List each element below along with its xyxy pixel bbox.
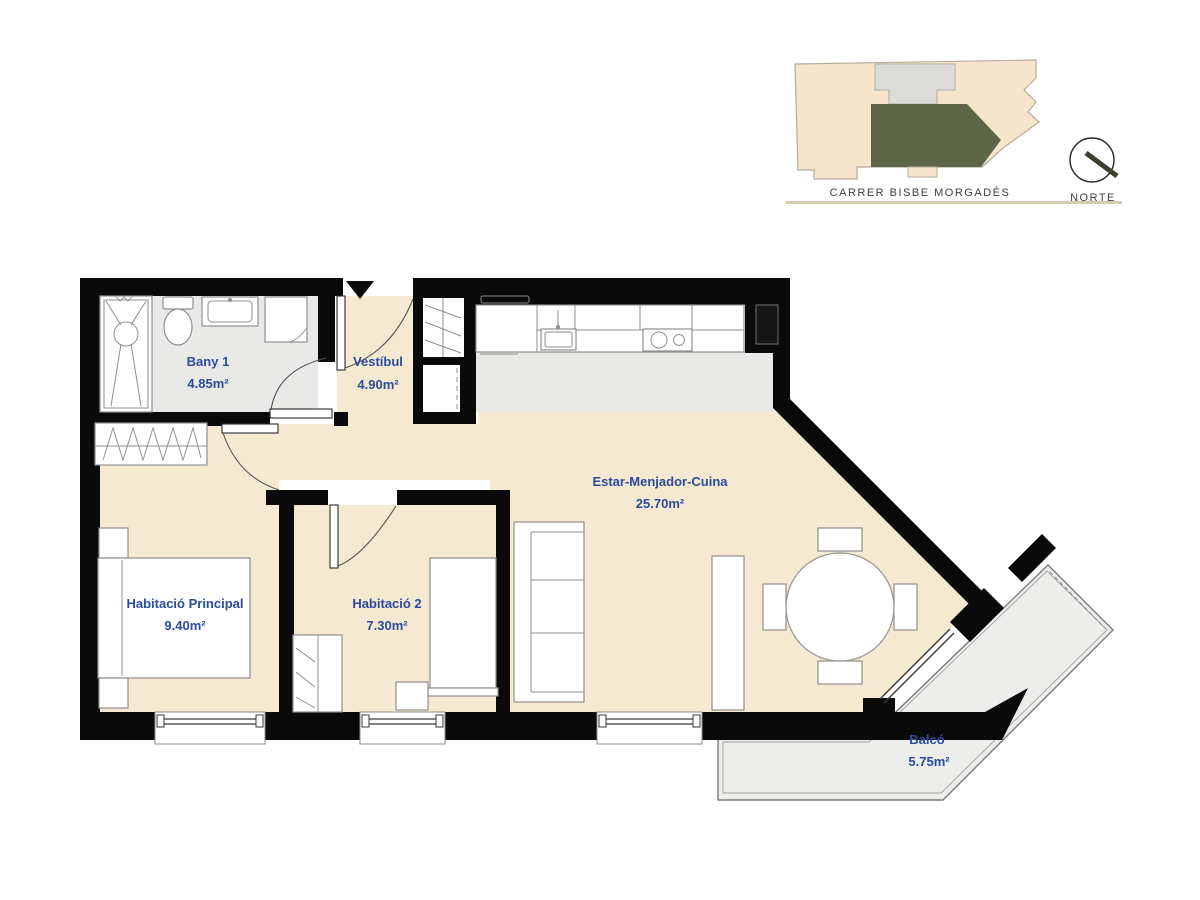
single-bed xyxy=(428,558,498,696)
wardrobe-bedroom1 xyxy=(95,423,207,465)
closet-bedroom2 xyxy=(293,635,342,712)
svg-text:25.70m²: 25.70m² xyxy=(636,496,685,511)
floorplan-page: CARRER BISBE MORGADÉS NORTE xyxy=(0,0,1200,900)
bathroom-cabinet xyxy=(265,297,307,342)
svg-text:9.40m²: 9.40m² xyxy=(164,618,206,633)
cooktop xyxy=(643,329,692,351)
chair xyxy=(894,584,917,630)
bathroom-sink xyxy=(202,297,258,326)
chair xyxy=(818,528,862,551)
nightstand xyxy=(99,528,128,558)
floorplan-drawing: CARRER BISBE MORGADÉS NORTE xyxy=(0,0,1200,900)
street-label: CARRER BISBE MORGADÉS xyxy=(830,186,1011,199)
svg-text:Bany 1: Bany 1 xyxy=(187,354,230,369)
svg-text:Estar-Menjador-Cuina: Estar-Menjador-Cuina xyxy=(592,474,728,489)
duct-appliance xyxy=(756,305,778,344)
svg-text:7.30m²: 7.30m² xyxy=(366,618,408,633)
kitchen-counter xyxy=(476,305,744,354)
sideboard xyxy=(712,556,744,710)
key-map-bottom-tab xyxy=(908,167,937,177)
svg-text:5.75m²: 5.75m² xyxy=(908,754,950,769)
key-map: CARRER BISBE MORGADÉS NORTE xyxy=(786,60,1122,204)
shower xyxy=(100,296,152,412)
svg-text:4.90m²: 4.90m² xyxy=(357,377,399,392)
toilet xyxy=(163,297,193,345)
window-living xyxy=(597,712,702,744)
north-label: NORTE xyxy=(1070,192,1116,204)
chair xyxy=(818,661,862,684)
svg-text:Balcó: Balcó xyxy=(909,732,944,747)
bedside-box xyxy=(396,682,428,710)
window-bedroom1 xyxy=(155,712,265,744)
svg-text:Habitació 2: Habitació 2 xyxy=(352,596,421,611)
window-bedroom2 xyxy=(360,712,445,744)
svg-text:4.85m²: 4.85m² xyxy=(187,376,229,391)
nightstand xyxy=(99,678,128,708)
sofa xyxy=(514,522,584,702)
hall-storage xyxy=(423,365,460,412)
svg-text:Vestíbul: Vestíbul xyxy=(353,354,403,369)
kitchen-floor xyxy=(476,350,773,412)
svg-text:Habitació Principal: Habitació Principal xyxy=(126,596,243,611)
chair xyxy=(763,584,786,630)
north-compass-icon xyxy=(1070,138,1117,182)
